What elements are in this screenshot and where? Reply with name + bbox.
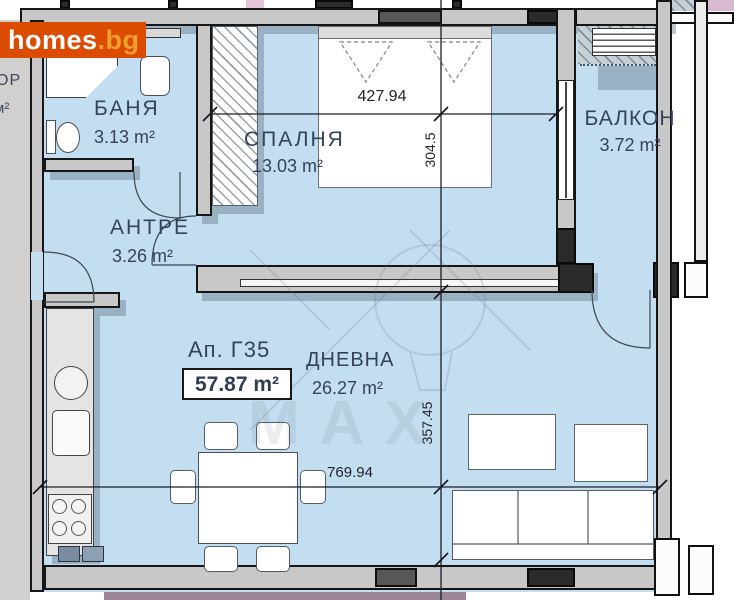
dim-bedroom-width: 427.94 <box>342 88 422 106</box>
logo-main-text: homes <box>8 25 98 55</box>
bed-pillows <box>340 42 480 82</box>
door-arc-entrance <box>44 252 94 302</box>
door-arc-balcony <box>592 290 650 348</box>
room-area-hallway: 3.26 m² <box>112 246 173 267</box>
homes-bg-logo: homes.bg <box>0 22 146 58</box>
room-label-bedroom: СПАЛНЯ <box>244 128 345 152</box>
apartment-label: Ап. Г35 <box>188 337 270 363</box>
neighbor-room-fragment: ОР <box>0 72 21 90</box>
room-label-hallway: АНТРЕ <box>110 216 190 240</box>
dim-apartment-width: 769.94 <box>314 464 386 481</box>
room-area-bedroom: 13.03 m² <box>252 156 323 177</box>
dim-bedroom-depth: 304.5 <box>422 120 438 180</box>
door-arc-bathroom <box>134 172 180 218</box>
room-label-balcony: БАЛКОН <box>578 107 682 131</box>
room-label-living: ДНЕВНА <box>306 349 394 372</box>
watermark-text: MAX <box>248 388 446 459</box>
floor-plan: БАНЯ 3.13 m² СПАЛНЯ 13.03 m² БАЛКОН 3.72… <box>0 0 734 600</box>
neighbor-area-fragment: м² <box>0 100 9 117</box>
room-label-bathroom: БАНЯ <box>94 97 160 121</box>
dim-arrow-ticks <box>33 107 667 567</box>
sofa-cushion-lines <box>452 490 654 544</box>
room-area-bathroom: 3.13 m² <box>94 127 155 148</box>
logo-suffix-text: .bg <box>98 25 140 55</box>
room-area-balcony: 3.72 m² <box>578 135 682 156</box>
